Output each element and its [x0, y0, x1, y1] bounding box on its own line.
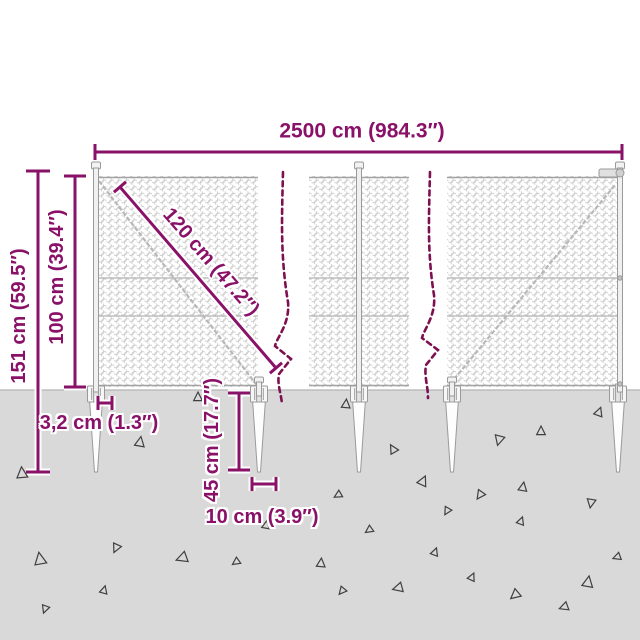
- wire-clamp: [618, 382, 622, 386]
- wire-clamp: [618, 276, 622, 280]
- fence-dimension-diagram: 2500 cm (984.3″) 151 cm (59.5″) 100 cm (…: [0, 0, 640, 640]
- corner-bracket: [599, 169, 624, 177]
- dim-label-spike-length: 45 cm (17.7″): [202, 378, 222, 502]
- diagram-canvas: [0, 0, 640, 640]
- dim-label-post-width: 3,2 cm (1.3″): [40, 413, 159, 433]
- break-mark-right: [422, 172, 438, 398]
- dim-label-total-height: 151 cm (59.5″): [9, 248, 29, 383]
- dim-label-total-width: 2500 cm (984.3″): [279, 121, 444, 142]
- dim-label-fence-height: 100 cm (39.4″): [47, 209, 67, 344]
- dim-line-total-width: [95, 144, 622, 160]
- dim-label-spike-width: 10 cm (3.9″): [206, 507, 319, 527]
- fence-mesh-panel-right: [447, 176, 622, 387]
